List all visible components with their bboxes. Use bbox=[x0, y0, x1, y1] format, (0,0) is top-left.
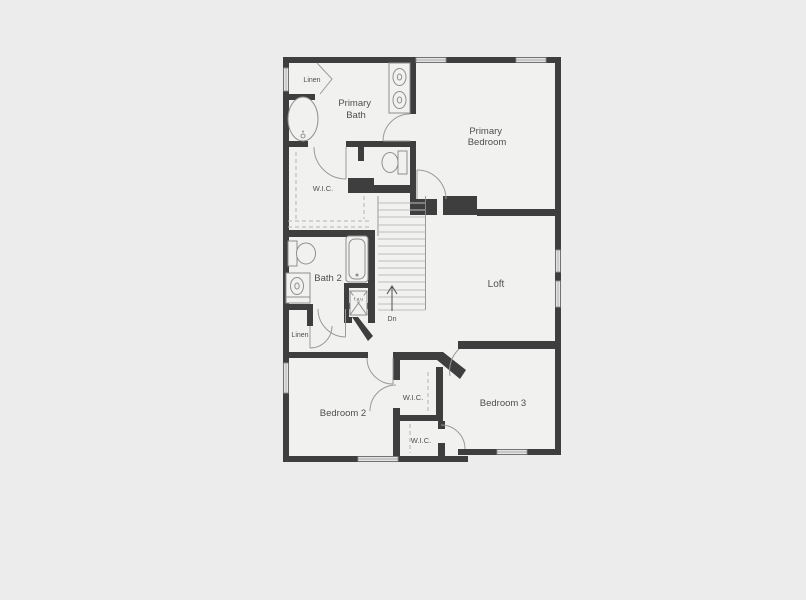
room-label-linen-hall: Linen bbox=[291, 332, 308, 339]
stairs-dn-label: Dn bbox=[388, 316, 397, 323]
room-label-primary-bedroom: Primary Bedroom bbox=[468, 126, 507, 148]
vanity-bath2 bbox=[286, 273, 310, 303]
room-label-bedroom3: Bedroom 3 bbox=[480, 398, 526, 409]
floor-plan-page: Linen Primary Bath Primary Bedroom W.I.C… bbox=[0, 0, 806, 600]
room-label-linen-top: Linen bbox=[303, 77, 320, 84]
room-label-wic-bedroom2: W.I.C. bbox=[403, 393, 423, 402]
toilet-primary bbox=[382, 151, 407, 174]
window bbox=[416, 58, 446, 62]
floor-plan: Linen Primary Bath Primary Bedroom W.I.C… bbox=[0, 0, 806, 600]
window bbox=[556, 250, 560, 272]
room-label-fau: f.a.u bbox=[354, 297, 363, 302]
room-label-wic-primary: W.I.C. bbox=[313, 184, 333, 193]
room-label-bath2: Bath 2 bbox=[314, 273, 341, 284]
vanity-primary bbox=[389, 63, 410, 113]
bathtub-bath2 bbox=[346, 236, 368, 282]
room-label-bedroom2: Bedroom 2 bbox=[320, 408, 366, 419]
room-label-wic-bedroom3: W.I.C. bbox=[411, 436, 431, 445]
window bbox=[284, 363, 288, 393]
fau-unit bbox=[350, 291, 367, 315]
window bbox=[556, 281, 560, 307]
room-label-loft: Loft bbox=[488, 279, 505, 290]
window bbox=[358, 457, 398, 461]
window bbox=[284, 68, 288, 91]
window bbox=[497, 450, 527, 454]
window bbox=[516, 58, 546, 62]
bathtub-primary bbox=[288, 97, 318, 141]
toilet-bath2 bbox=[288, 241, 316, 266]
